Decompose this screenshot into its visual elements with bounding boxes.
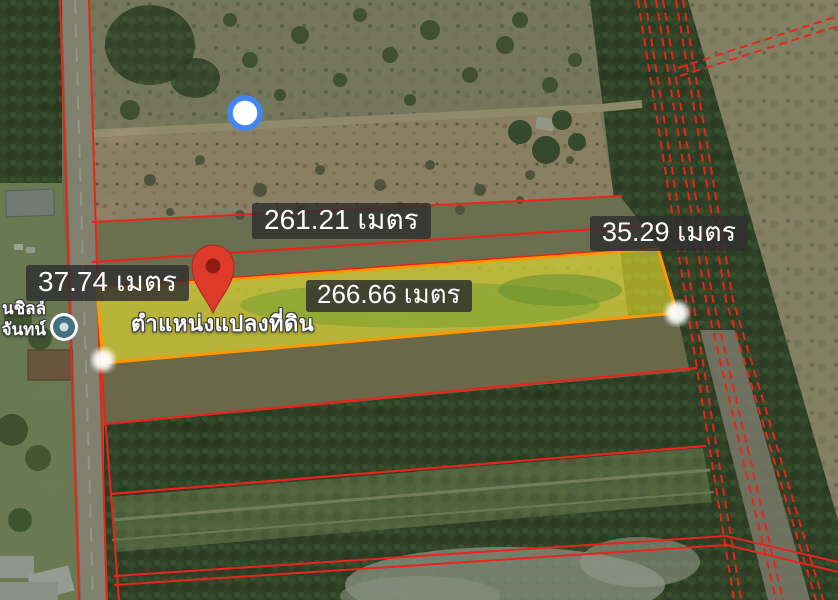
measurement-label-bottom: 266.66 เมตร [306, 280, 472, 312]
vertex-marker-left [92, 349, 114, 371]
satellite-map: 261.21 เมตร 35.29 เมตร 37.74 เมตร 266.66… [0, 0, 838, 600]
poi-place-label: นชิลล์ จันทน์ [0, 298, 46, 340]
measurement-label-top: 261.21 เมตร [252, 203, 431, 239]
blue-point-marker-icon [230, 98, 260, 128]
poi-place-label-line2: จันทน์ [0, 319, 46, 340]
poi-place-label-line1: นชิลล์ [0, 298, 46, 319]
measurement-label-right: 35.29 เมตร [590, 216, 748, 251]
poi-place-icon[interactable] [50, 313, 78, 341]
plot-location-label: ตำแหน่งแปลงที่ดิน [131, 306, 314, 341]
vertex-marker-right [666, 302, 689, 325]
measurement-label-left: 37.74 เมตร [26, 265, 189, 301]
